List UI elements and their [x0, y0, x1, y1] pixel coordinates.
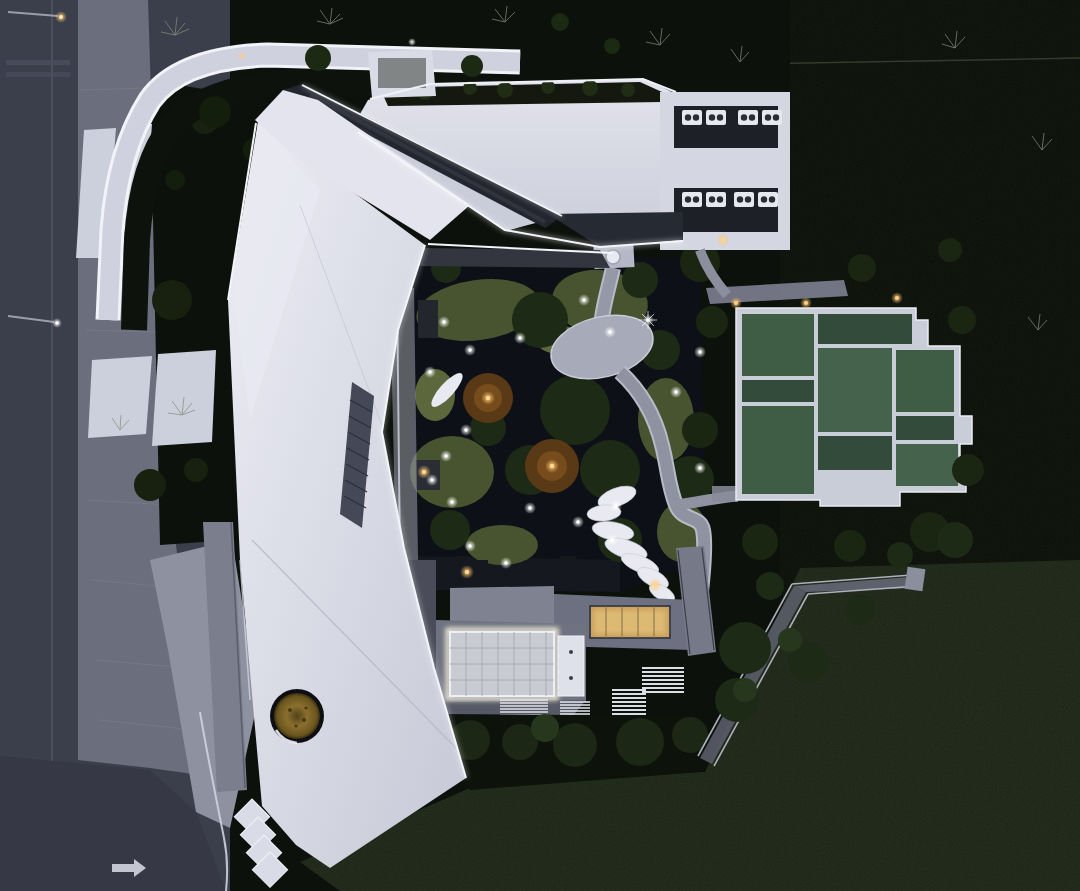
- garden-light: [698, 350, 701, 353]
- hvac-fan: [709, 196, 715, 202]
- garden-light: [486, 396, 490, 400]
- garden-light: [518, 336, 521, 339]
- service-panel: [558, 636, 584, 696]
- garden-light: [465, 570, 469, 574]
- hvac-fan: [693, 196, 699, 202]
- facade-warm-light: [716, 233, 730, 247]
- court-panel: [818, 436, 892, 470]
- stair-run-3: [612, 690, 646, 714]
- road-band: [6, 72, 70, 77]
- oculus-tree: [274, 693, 320, 739]
- path-light: [408, 38, 416, 46]
- hvac-fan: [685, 196, 691, 202]
- aerial-photo: [0, 0, 1080, 891]
- garden-light: [698, 466, 701, 469]
- garden-light: [550, 464, 554, 468]
- court-panel: [742, 314, 814, 376]
- stair-run-4: [642, 668, 684, 692]
- garden-light: [422, 470, 426, 474]
- path-light: [238, 52, 246, 60]
- court-panel: [818, 314, 912, 344]
- hvac-fan: [773, 114, 779, 120]
- garden-light: [468, 544, 471, 547]
- garden-light: [450, 500, 453, 503]
- hvac-fan: [741, 114, 747, 120]
- garden-light: [576, 520, 579, 523]
- hvac-fan: [717, 196, 723, 202]
- hvac-fan: [769, 196, 775, 202]
- hvac-fan: [717, 114, 723, 120]
- lamp-head: [59, 15, 63, 19]
- hvac-fan: [765, 114, 771, 120]
- ramp-landing: [905, 567, 926, 591]
- garden-light: [653, 583, 657, 587]
- parapet-volume-inset: [378, 58, 426, 88]
- garden-light: [582, 298, 585, 301]
- garden-light: [468, 348, 471, 351]
- garden-light: [444, 454, 447, 457]
- hvac-fan: [745, 196, 751, 202]
- hvac-fan: [709, 114, 715, 120]
- roof-oculus: [270, 689, 324, 743]
- hvac-fan: [693, 114, 699, 120]
- garden-light: [608, 330, 611, 333]
- aerial-photo-stage: [0, 0, 1080, 891]
- road-band: [6, 60, 70, 65]
- court-panel: [742, 380, 814, 402]
- court-panel: [742, 406, 814, 494]
- hvac-fan: [737, 196, 743, 202]
- garden-light: [614, 504, 617, 507]
- lamp-head: [55, 321, 59, 325]
- garden-light: [528, 506, 531, 509]
- garden-light: [442, 320, 445, 323]
- garden-light: [464, 428, 467, 431]
- garden-light: [610, 538, 613, 541]
- garden-light: [504, 561, 507, 564]
- panel-fitting: [569, 650, 573, 654]
- hvac-fan: [761, 196, 767, 202]
- warm-skylight-glow: [594, 610, 666, 634]
- terrace-upper-band: [450, 586, 554, 626]
- court-access-walk: [712, 486, 738, 502]
- court-panel: [896, 444, 958, 486]
- court-panel: [896, 350, 954, 412]
- garden-light: [674, 390, 677, 393]
- garden-light: [430, 478, 433, 481]
- garden-light: [428, 370, 431, 373]
- hvac-fan: [749, 114, 755, 120]
- panel-fitting: [569, 676, 573, 680]
- hvac-fan: [685, 114, 691, 120]
- court-panel: [818, 348, 892, 432]
- court-panel: [896, 416, 954, 440]
